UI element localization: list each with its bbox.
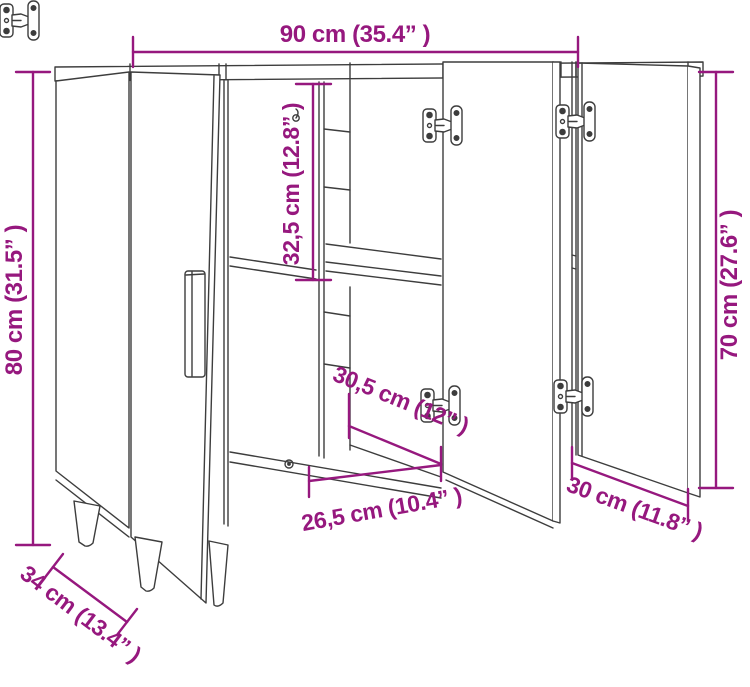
right-door xyxy=(578,63,700,497)
cam-lock-center xyxy=(288,463,290,465)
left-height-dimension: 80 cm (31.5” ) xyxy=(1,225,28,375)
hinge-bottom-right-door xyxy=(554,377,593,416)
right-height-dimension: 70 cm (27.6” ) xyxy=(716,210,743,360)
cabinet-diagram: 90 cm (35.4” ) 80 cm (31.5” ) 70 cm (27.… xyxy=(0,0,750,687)
top-width-dimension: 90 cm (35.4” ) xyxy=(280,21,430,48)
interior-divider xyxy=(319,80,350,458)
door-handle xyxy=(185,271,205,377)
left-door-edge xyxy=(56,72,129,537)
base-depth-dimension: 34 cm (13.4” ) xyxy=(15,560,146,667)
hinge-icon xyxy=(0,1,39,40)
interior-width-dimension: 26,5 cm (10.4” ) xyxy=(299,482,463,536)
left-door xyxy=(131,72,220,603)
middle-shelf xyxy=(230,244,441,285)
cabinet-left-side xyxy=(224,80,228,526)
product-dimension-diagram: 90 cm (35.4” ) 80 cm (31.5” ) 70 cm (27.… xyxy=(0,0,750,687)
interior-height-dimension: 32,5 cm (12.8” ) xyxy=(278,103,304,265)
